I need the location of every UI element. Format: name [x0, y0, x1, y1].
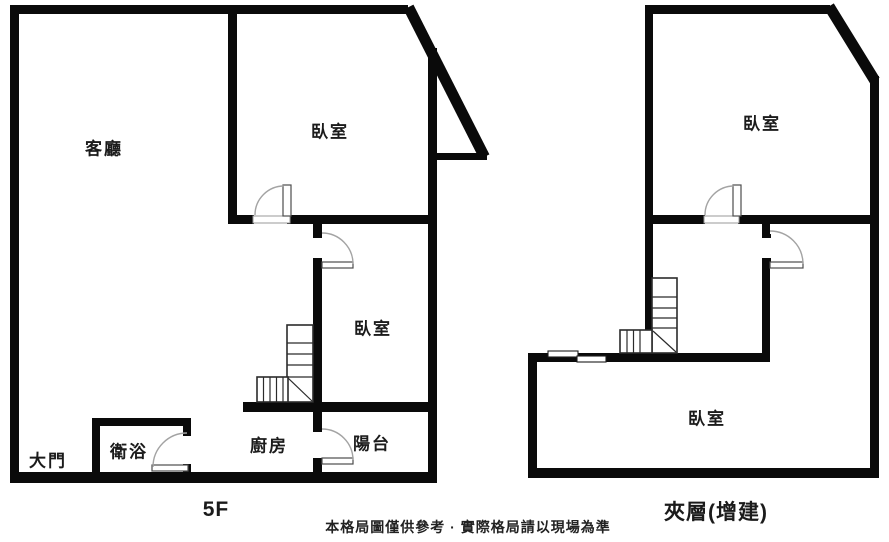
wall-middle-main — [762, 262, 770, 362]
wall-livingroom-bedroom-divider — [228, 5, 237, 224]
wall-kitchen-top — [243, 402, 437, 412]
balcony-door-leaf — [322, 458, 353, 464]
floorplan-canvas: 客廳 臥室 臥室 大門 衛浴 廚房 陽台 5F 臥室 臥室 夾層(增建) 本格局… — [0, 0, 889, 542]
bedroom-door-leaf — [733, 185, 741, 216]
room-label-bedroom-lower-5f: 臥室 — [354, 315, 392, 340]
bedroom-door-leaf — [283, 185, 291, 216]
window — [577, 356, 606, 362]
room-label-bedroom-upper-mezzanine: 臥室 — [743, 110, 781, 135]
wall-corridor-stub — [313, 224, 322, 234]
wall-top — [645, 5, 830, 14]
wall-bottom — [528, 468, 879, 478]
bedroom-door-arc — [255, 186, 284, 215]
door-threshold — [253, 216, 290, 223]
wall-diagonal — [411, 12, 482, 152]
door-hinge-stub — [762, 234, 771, 238]
wall-bedroom-bottom-left — [228, 215, 254, 224]
staircase-upper-flight — [287, 325, 313, 402]
door-hinge-stub — [313, 234, 322, 238]
wall-bedroom-bottom-right — [738, 215, 879, 224]
floor-label-mezzanine: 夾層(增建) — [664, 496, 768, 526]
disclaimer-text: 本格局圖僅供參考 · 實際格局請以現場為準 — [325, 517, 610, 537]
wall-bathroom-top — [92, 418, 191, 426]
room-label-bathroom: 衛浴 — [110, 438, 148, 463]
balcony-door-arc — [322, 429, 353, 460]
wall-bedroom-bottom-right — [287, 215, 437, 224]
window — [548, 351, 578, 357]
room-label-balcony: 陽台 — [353, 430, 391, 455]
floor-label-5f: 5F — [203, 498, 230, 522]
wall-left — [10, 5, 19, 483]
door-hinge-stub — [313, 258, 322, 262]
bedroom-door-arc — [705, 186, 734, 215]
wall-diagonal — [832, 11, 872, 76]
wall-left-lower — [528, 353, 537, 478]
wall-triangle-base — [434, 153, 487, 160]
room-label-living-room: 客廳 — [85, 135, 123, 160]
door-hinge-stub — [762, 258, 771, 262]
bedroom-lower-door-arc — [322, 233, 353, 264]
bedroom-lower-door-leaf — [322, 262, 353, 268]
middle-door-arc — [770, 231, 803, 264]
room-label-main-entrance: 大門 — [29, 447, 67, 472]
bathroom-door-leaf — [152, 465, 188, 471]
wall-middle-stub — [762, 224, 770, 234]
wall-right — [870, 76, 879, 478]
room-label-bedroom-lower-mezzanine: 臥室 — [688, 405, 726, 430]
wall-top — [10, 5, 408, 14]
door-threshold — [704, 216, 739, 223]
wall-bathroom-left — [92, 418, 100, 472]
middle-door-leaf — [770, 262, 803, 268]
room-label-kitchen: 廚房 — [250, 432, 288, 457]
wall-bedroom-bottom-left — [645, 215, 705, 224]
room-label-bedroom-upper-5f: 臥室 — [311, 118, 349, 143]
plan-5f-graphics — [10, 5, 487, 483]
staircase-lower-flight — [620, 330, 652, 353]
bathroom-door-arc — [153, 433, 187, 467]
wall-bottom — [10, 472, 437, 483]
wall-balcony-stub — [313, 458, 322, 472]
